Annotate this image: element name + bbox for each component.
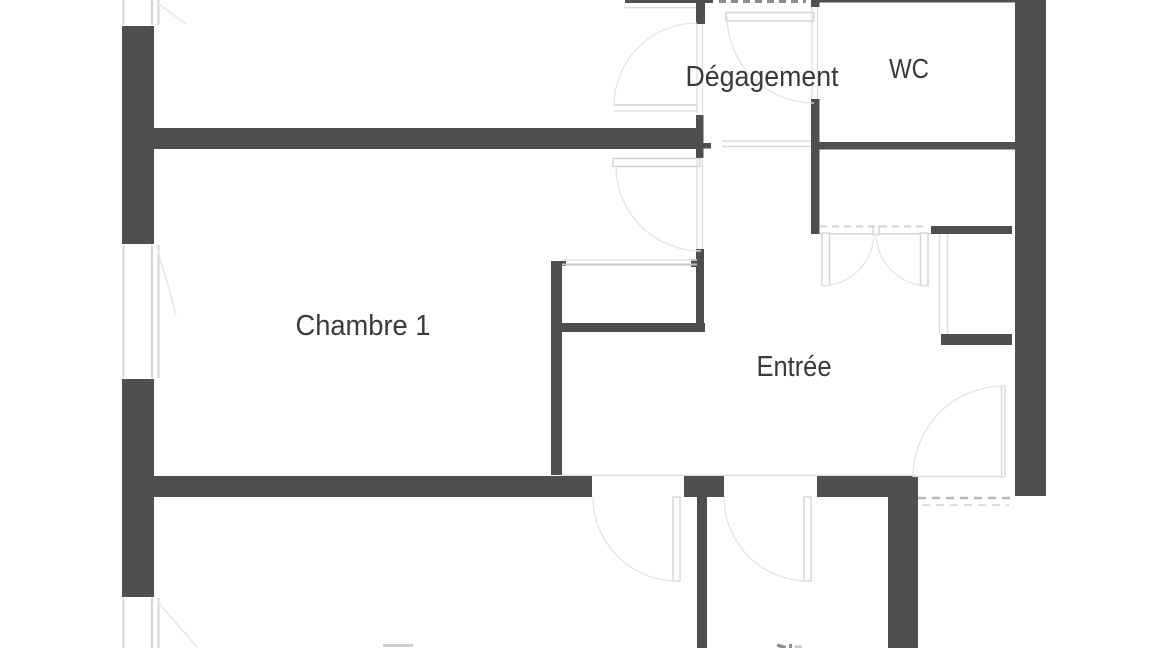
svg-text:Entrée: Entrée [757, 351, 832, 383]
svg-text:Dégagement: Dégagement [686, 61, 839, 93]
svg-text:Chambre 1: Chambre 1 [296, 310, 431, 342]
svg-text:WC: WC [889, 53, 929, 84]
